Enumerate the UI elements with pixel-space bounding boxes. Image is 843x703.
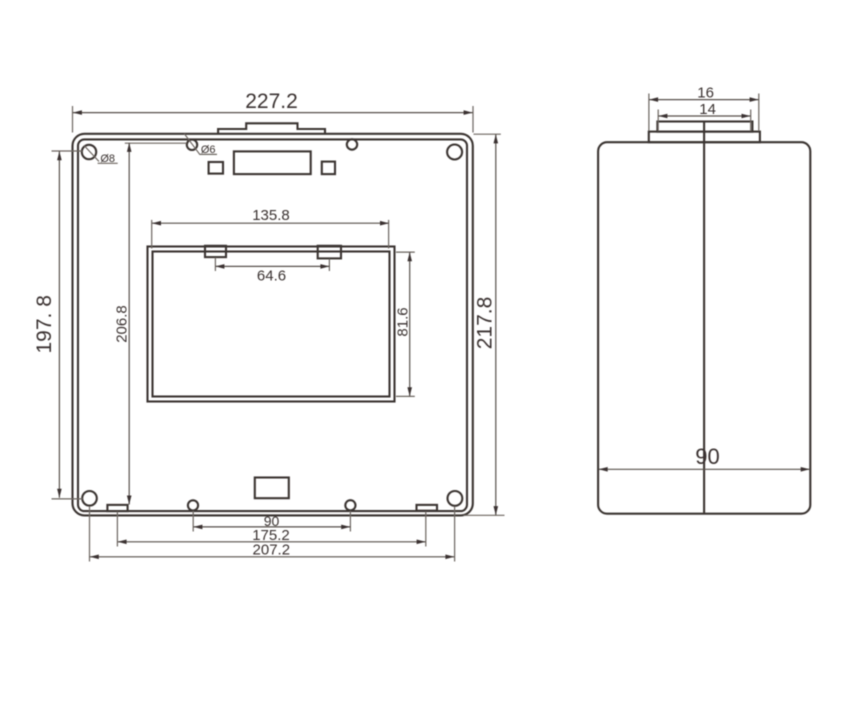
svg-text:135.8: 135.8 [252, 207, 290, 224]
svg-text:227.2: 227.2 [245, 90, 298, 113]
svg-text:81.6: 81.6 [395, 307, 412, 336]
svg-text:206.8: 206.8 [114, 305, 131, 343]
svg-text:217.8: 217.8 [474, 297, 497, 350]
svg-text:207.2: 207.2 [253, 542, 291, 559]
svg-text:14: 14 [699, 101, 716, 118]
svg-text:16: 16 [697, 84, 714, 101]
svg-text:90: 90 [695, 444, 719, 469]
svg-text:64.6: 64.6 [257, 267, 286, 284]
svg-text:Ø6: Ø6 [201, 144, 216, 156]
svg-text:197. 8: 197. 8 [33, 295, 56, 353]
svg-text:Ø8: Ø8 [100, 153, 115, 165]
